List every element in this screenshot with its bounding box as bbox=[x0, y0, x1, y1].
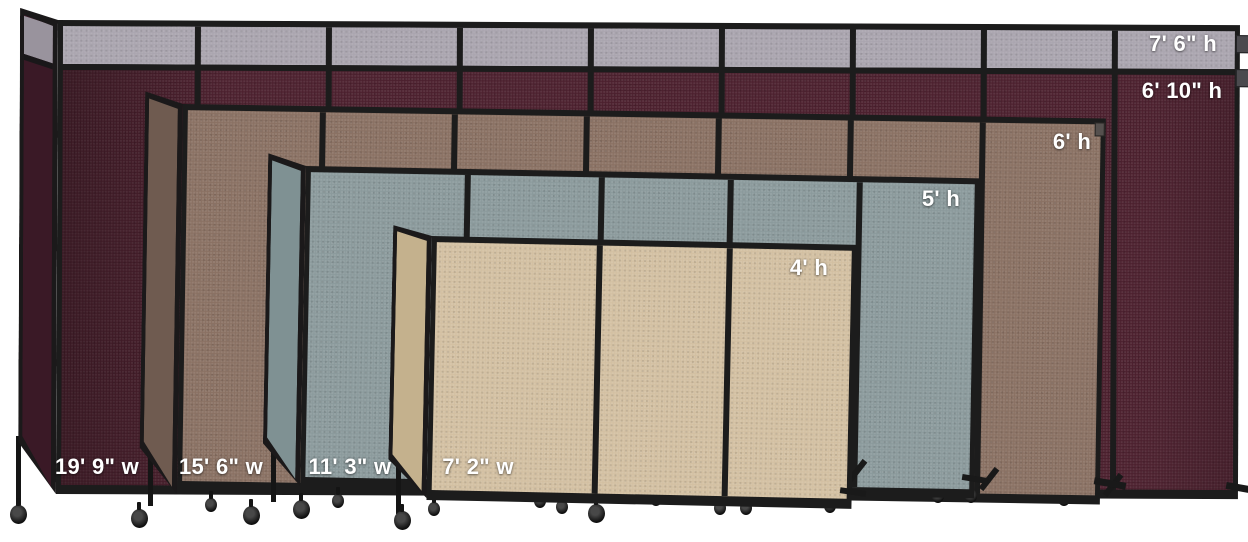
width-label-15ft6: 15' 6" w bbox=[179, 454, 263, 480]
width-label-19ft9: 19' 9" w bbox=[55, 454, 139, 480]
wall-bracket bbox=[1236, 69, 1248, 87]
height-label-6ft: 6' h bbox=[1053, 129, 1091, 155]
wall-bracket bbox=[1236, 35, 1248, 53]
height-label-7ft6: 7' 6" h bbox=[1149, 31, 1217, 57]
width-label-11ft3: 11' 3" w bbox=[309, 454, 392, 480]
height-label-5ft: 5' h bbox=[922, 186, 960, 212]
panel-seam bbox=[722, 248, 733, 496]
height-label-4ft: 4' h bbox=[790, 255, 828, 281]
height-extender-panel bbox=[63, 26, 1235, 69]
width-label-7ft2: 7' 2" w bbox=[442, 454, 514, 480]
divider-size-comparison-image: 7' 6" h 6' 10" h 6' h 5' h 4' h 19' 9" w… bbox=[0, 0, 1248, 542]
height-label-6ft10: 6' 10" h bbox=[1142, 78, 1222, 104]
hinge-tab bbox=[1095, 122, 1105, 136]
panel-seam bbox=[592, 245, 603, 493]
